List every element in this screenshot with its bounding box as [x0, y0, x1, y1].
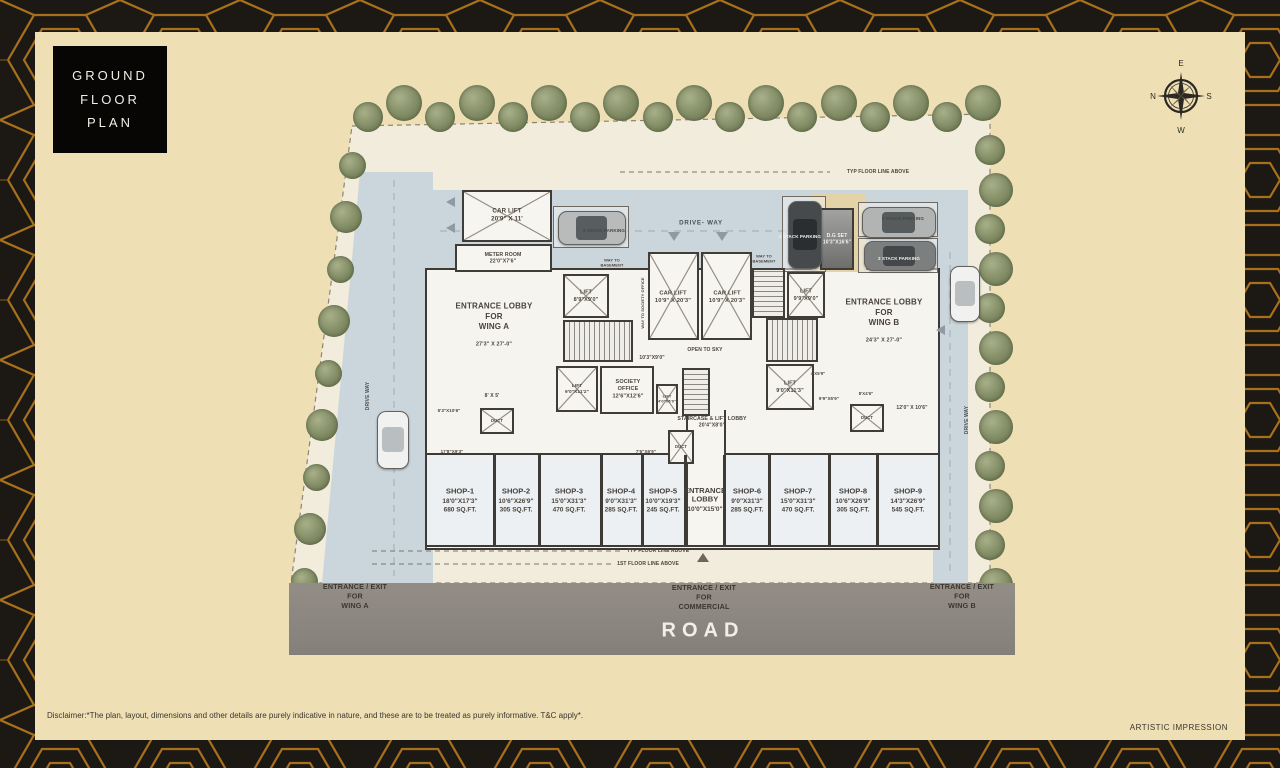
tree-icon	[327, 256, 354, 283]
way-to-basement-label: WAY TO BASEMENT	[600, 258, 623, 269]
driveway-label: DRIVE- WAY	[679, 219, 723, 227]
dg-set-label: D.G SET 10'3"X16'6"	[823, 232, 851, 245]
shop-dims: 10'0"X15'0"	[684, 505, 726, 512]
duct-label: DUCT	[491, 418, 503, 424]
shop-area: 245 SQ.FT.	[645, 506, 680, 513]
tree-icon	[893, 85, 929, 121]
tree-icon	[975, 451, 1005, 481]
shop-dims: 15'0"X31'3"	[780, 497, 815, 504]
disclaimer-text: Disclaimer:*The plan, layout, dimensions…	[47, 711, 583, 720]
shop-label: SHOP-315'0"X31'3"470 SQ.FT.	[551, 487, 586, 513]
shop-name: SHOP-6	[731, 487, 764, 496]
driveway-label-vertical: DRIVE WAY	[365, 382, 372, 411]
tree-icon	[570, 102, 600, 132]
road-surface	[289, 583, 1015, 655]
tree-icon	[975, 372, 1005, 402]
driveway-label-vertical: DRIVE WAY	[964, 406, 971, 435]
car-cabin	[382, 427, 404, 453]
stairs-wing-b	[766, 318, 818, 362]
shop-label: SHOP-914'3"X26'9"545 SQ.FT.	[890, 487, 925, 513]
tree-icon	[330, 201, 362, 233]
tree-icon	[979, 331, 1013, 365]
tree-icon	[339, 152, 366, 179]
road-name: ROAD	[662, 620, 745, 643]
shop-wall	[828, 455, 831, 545]
lobby-b-label: ENTRANCE LOBBY FOR WING B	[846, 297, 923, 329]
way-to-basement-label: WAY TO BASEMENT	[752, 254, 775, 265]
tree-icon	[975, 135, 1005, 165]
dim-label: 5'3"X10'6"	[438, 408, 461, 414]
duct-label: DUCT	[675, 444, 687, 450]
lobby-a-dims: 27'3" X 27'-0"	[476, 340, 512, 347]
tree-icon	[294, 513, 326, 545]
duct-label: DUCT	[861, 415, 873, 421]
stairs-mid	[752, 268, 785, 318]
way-to-society-label: WAY TO SOCIETY OFFICE	[640, 277, 645, 328]
shop-label: SHOP-49'0"X31'3"285 SQ.FT.	[605, 487, 638, 513]
shop-label: SHOP-510'0"X19'3"245 SQ.FT.	[645, 487, 680, 513]
car-icon	[377, 411, 409, 469]
road-label-wing-a: ENTRANCE / EXIT FOR WING A	[323, 583, 387, 611]
arrow-icon	[668, 232, 680, 241]
shop-area: 285 SQ.FT.	[605, 506, 638, 513]
shop-wall	[641, 455, 644, 545]
compass-e: E	[1178, 59, 1183, 68]
shop-dims: 9'0"X31'3"	[731, 497, 764, 504]
shop-dims: 18'0"X17'3"	[442, 497, 477, 504]
dim-label: 12'0" X 10'6"	[896, 405, 927, 412]
tree-icon	[459, 85, 495, 121]
shop-dims: 15'0"X31'3"	[551, 497, 586, 504]
lift-a-label: LIFT 8'9"X9'0"	[574, 289, 599, 304]
tree-icon	[353, 102, 383, 132]
shop-area: 470 SQ.FT.	[780, 506, 815, 513]
tree-icon	[979, 252, 1013, 286]
compass-icon: E S W N	[1148, 55, 1214, 135]
lift-b-label: LIFT 9'0"X11'3"	[776, 380, 804, 395]
car-icon	[862, 207, 936, 238]
shop-area: 305 SQ.FT.	[835, 506, 870, 513]
artistic-impression-label: ARTISTIC IMPRESSION	[1130, 723, 1228, 732]
dim-label: 10'3"X9'0"	[639, 355, 664, 362]
car-lift-2-label: CAR LIFT 10'9" X 20'3"	[709, 289, 745, 304]
dim-label: 9'9"X5'9"	[819, 396, 839, 402]
commercial-lobby-label: ENTRANCE LOBBY10'0"X15'0"	[684, 486, 726, 513]
shop-area: 305 SQ.FT.	[498, 506, 533, 513]
road-label-commercial: ENTRANCE / EXIT FOR COMMERCIAL	[672, 584, 736, 612]
tree-icon	[303, 464, 330, 491]
shop-name: SHOP-3	[551, 487, 586, 496]
tree-icon	[979, 489, 1013, 523]
tree-icon	[975, 530, 1005, 560]
compass-n: N	[1150, 92, 1156, 101]
tree-icon	[531, 85, 567, 121]
dim-label: 17'8"X9'3"	[441, 449, 464, 455]
shop-name: SHOP-7	[780, 487, 815, 496]
arrow-icon	[716, 232, 728, 241]
tree-icon	[860, 102, 890, 132]
car-icon	[950, 266, 980, 322]
tree-icon	[932, 102, 962, 132]
tree-icon	[306, 409, 338, 441]
arrow-icon	[697, 553, 709, 562]
tree-icon	[318, 305, 350, 337]
shop-label: SHOP-210'6"X26'9"305 SQ.FT.	[498, 487, 533, 513]
meter-room-label: METER ROOM 22'0"X7'6"	[485, 251, 522, 265]
open-to-sky-label: OPEN TO SKY	[687, 347, 722, 354]
shop-dims: 14'3"X26'9"	[890, 497, 925, 504]
shop-area: 285 SQ.FT.	[731, 506, 764, 513]
lobby-b-dims: 24'3" X 27'-0"	[866, 336, 902, 343]
tree-icon	[979, 173, 1013, 207]
tree-icon	[748, 85, 784, 121]
shop-area: 680 SQ.FT.	[442, 506, 477, 513]
stack-parking-label: 2 STACK PARKING	[878, 256, 920, 262]
shop-label: SHOP-810'6"X26'9"305 SQ.FT.	[835, 487, 870, 513]
tree-icon	[715, 102, 745, 132]
shop-dims: 9'0"X31'3"	[605, 497, 638, 504]
title-block: GROUND FLOOR PLAN	[53, 46, 167, 153]
society-office-label: SOCIETY OFFICE 12'6"X12'6"	[612, 378, 643, 400]
lift-mid-label: LIFT 9'9"X9'0"	[794, 288, 819, 303]
tree-icon	[643, 102, 673, 132]
first-floor-line-label: 1ST FLOOR LINE ABOVE	[617, 561, 679, 568]
dim-label: 8'X4'6"	[859, 391, 873, 397]
shop-name: SHOP-2	[498, 487, 533, 496]
tree-icon	[315, 360, 342, 387]
shop-wall	[493, 455, 496, 545]
dim-label: 7'6"X6'9"	[636, 449, 656, 455]
shop-name: SHOP-4	[605, 487, 638, 496]
arrow-icon	[446, 223, 455, 233]
compass-s: S	[1206, 92, 1211, 101]
shop-wall	[768, 455, 771, 545]
shop-name: SHOP-9	[890, 487, 925, 496]
dim-label: 8' X 5'	[485, 393, 500, 400]
page-title: GROUND FLOOR PLAN	[72, 64, 148, 134]
tree-icon	[498, 102, 528, 132]
shop-name: SHOP-8	[835, 487, 870, 496]
dim-label: 4'X5'9"	[811, 371, 825, 377]
typ-floor-line-label: TYP FLOOR LINE ABOVE	[847, 169, 909, 176]
arrow-icon	[936, 325, 945, 335]
tree-icon	[676, 85, 712, 121]
car-lift-1-label: CAR LIFT 10'9" X 20'3"	[655, 289, 691, 304]
tree-icon	[979, 410, 1013, 444]
typ-floor-line-label: TYP FLOOR LINE ABOVE	[627, 548, 689, 555]
stack-parking-label: 2 STACK PARKING	[583, 228, 625, 234]
stack-parking-label: 2 STACK PARKING	[882, 216, 924, 222]
shop-area: 545 SQ.FT.	[890, 506, 925, 513]
shop-wall	[876, 455, 879, 545]
shop-area: 470 SQ.FT.	[551, 506, 586, 513]
stack-parking-label: 2 STACK PARKING	[779, 234, 821, 240]
tree-icon	[821, 85, 857, 121]
tree-icon	[975, 214, 1005, 244]
society-lift-label: LIFT 9'0"X11'2"	[565, 383, 589, 396]
stairs-center	[682, 368, 710, 416]
shop-wall	[538, 455, 541, 545]
small-lift-label: LIFT 4'0"X6'0"	[658, 394, 676, 405]
shop-name: SHOP-1	[442, 487, 477, 496]
road-label-wing-b: ENTRANCE / EXIT FOR WING B	[930, 583, 994, 611]
shop-label: SHOP-69'0"X31'3"285 SQ.FT.	[731, 487, 764, 513]
shop-dims: 10'6"X26'9"	[835, 497, 870, 504]
shop-dims: 10'0"X19'3"	[645, 497, 680, 504]
shop-dims: 10'6"X26'9"	[498, 497, 533, 504]
shop-label: SHOP-715'0"X31'3"470 SQ.FT.	[780, 487, 815, 513]
compass-w: W	[1177, 126, 1185, 135]
shop-name: ENTRANCE LOBBY	[684, 486, 726, 503]
shop-name: SHOP-5	[645, 487, 680, 496]
car-lift-top-label: CAR LIFT 20'9" X 11'	[491, 207, 523, 223]
tree-icon	[386, 85, 422, 121]
car-cabin	[955, 281, 975, 306]
arrow-icon	[446, 197, 455, 207]
shop-label: SHOP-118'0"X17'3"680 SQ.FT.	[442, 487, 477, 513]
shop-wall	[600, 455, 603, 545]
stairs-wing-a	[563, 320, 633, 362]
stair-lobby-label: STAIRCASE & LIFT LOBBY 20'4"X8'0"	[677, 415, 746, 429]
lobby-a-label: ENTRANCE LOBBY FOR WING A	[456, 301, 533, 333]
